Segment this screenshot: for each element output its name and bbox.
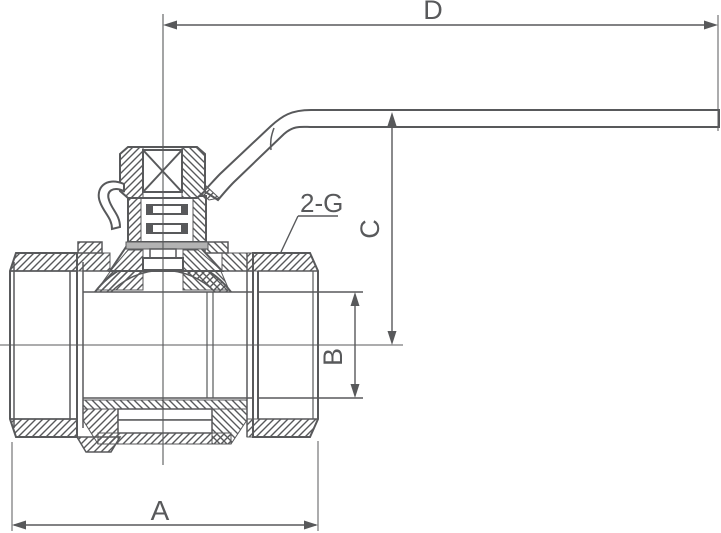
valve-body [10,242,363,452]
bottom-seat [77,400,247,452]
arrowhead-down [388,331,397,345]
arrowhead-right [704,21,718,30]
drawing-svg: D C B A 2-G [0,0,721,533]
stem-gasket [126,242,208,249]
arrowhead-left [163,21,177,30]
dimension-b-label: B [318,348,348,366]
dimension-a-label: A [151,495,170,526]
top-band-right [222,253,247,271]
handle-lever [198,110,719,200]
arrowhead-left [12,521,26,530]
stem-hook [99,182,124,229]
ball-valve-technical-drawing: D C B A 2-G [0,0,721,533]
arrowhead-right [304,521,318,530]
callout-leader-line [281,216,298,252]
dimension-a: A [12,441,318,531]
arrowhead-down [351,384,360,398]
bonnet-tab-left [78,242,102,253]
top-band-left [77,253,110,271]
arrowhead-up [351,292,360,306]
thread-callout-label: 2-G [300,188,343,218]
thread-callout: 2-G [281,188,343,252]
dimension-c-label: C [355,219,385,239]
handle-outline [204,110,719,200]
dimension-d-label: D [423,0,443,25]
dimension-c: C [355,112,397,345]
